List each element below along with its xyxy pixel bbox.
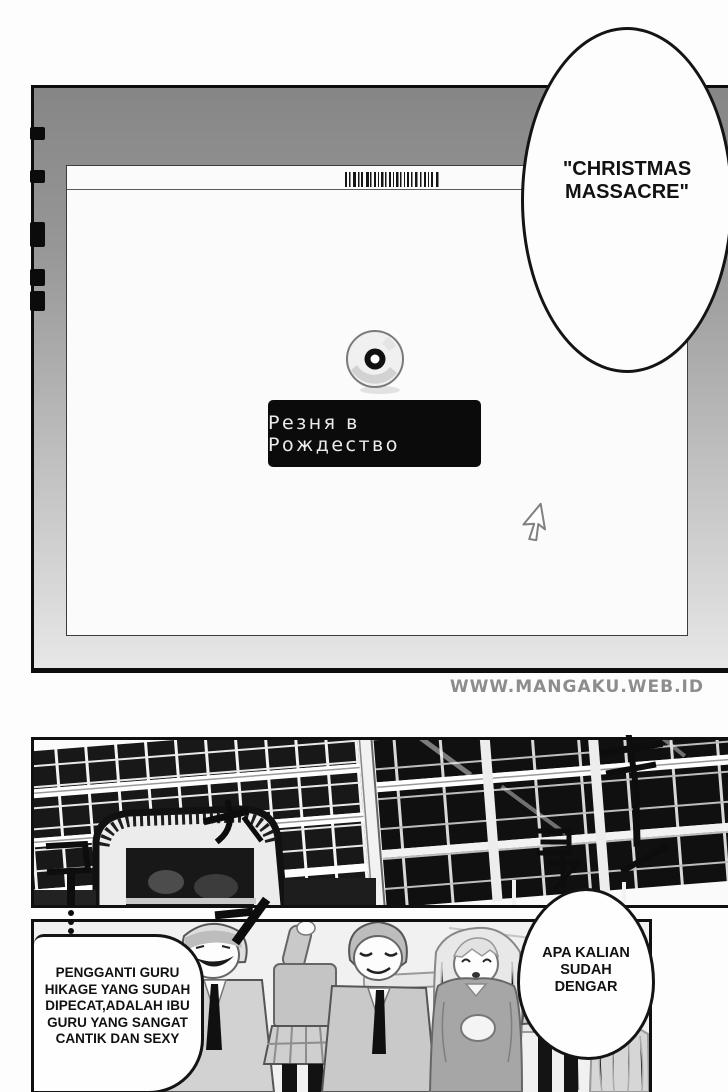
speech-line: DENGAR	[520, 979, 652, 996]
video-title-box: Резня в Рождество	[268, 400, 481, 467]
barcode	[345, 172, 439, 187]
speech-line: MASSACRE"	[524, 181, 728, 204]
panel-school-building	[31, 737, 728, 908]
caption-box: PENGGANTI GURU HIKAGE YANG SUDAH DIPECAT…	[34, 934, 204, 1092]
speech-line: SUDAH	[520, 962, 652, 979]
video-title-text: Резня в Рождество	[268, 412, 481, 456]
speech-line: "CHRISTMAS	[524, 158, 728, 181]
monitor-side-tab	[30, 269, 45, 286]
school-entrance	[96, 809, 284, 905]
monitor-side-tab	[30, 127, 45, 140]
caption-line: CANTIK DAN SEXY	[34, 1031, 201, 1048]
cd-disc-icon	[344, 328, 408, 396]
speech-bubble-christmas: "CHRISTMAS MASSACRE"	[521, 27, 728, 373]
caption-line: PENGGANTI GURU	[34, 965, 201, 982]
watermark: WWW.MANGAKU.WEB.ID	[404, 677, 704, 697]
monitor-side-tab	[30, 170, 45, 183]
student-blonde-girl	[430, 928, 522, 1092]
mouse-cursor-icon	[520, 501, 556, 549]
monitor-side-tab	[30, 222, 45, 247]
manga-page: Резня в Рождество "CHRISTMAS MASSACRE" W…	[0, 0, 728, 1092]
caption-line: HIKAGE YANG SUDAH	[34, 982, 201, 999]
speech-bubble-question: APA KALIAN SUDAH DENGAR	[517, 888, 655, 1060]
caption-line: GURU YANG SANGAT	[34, 1015, 201, 1032]
school-building-art	[34, 740, 728, 905]
caption-line: DIPECAT,ADALAH IBU	[34, 998, 201, 1015]
speech-line: APA KALIAN	[520, 945, 652, 962]
monitor-side-tab	[30, 291, 45, 311]
